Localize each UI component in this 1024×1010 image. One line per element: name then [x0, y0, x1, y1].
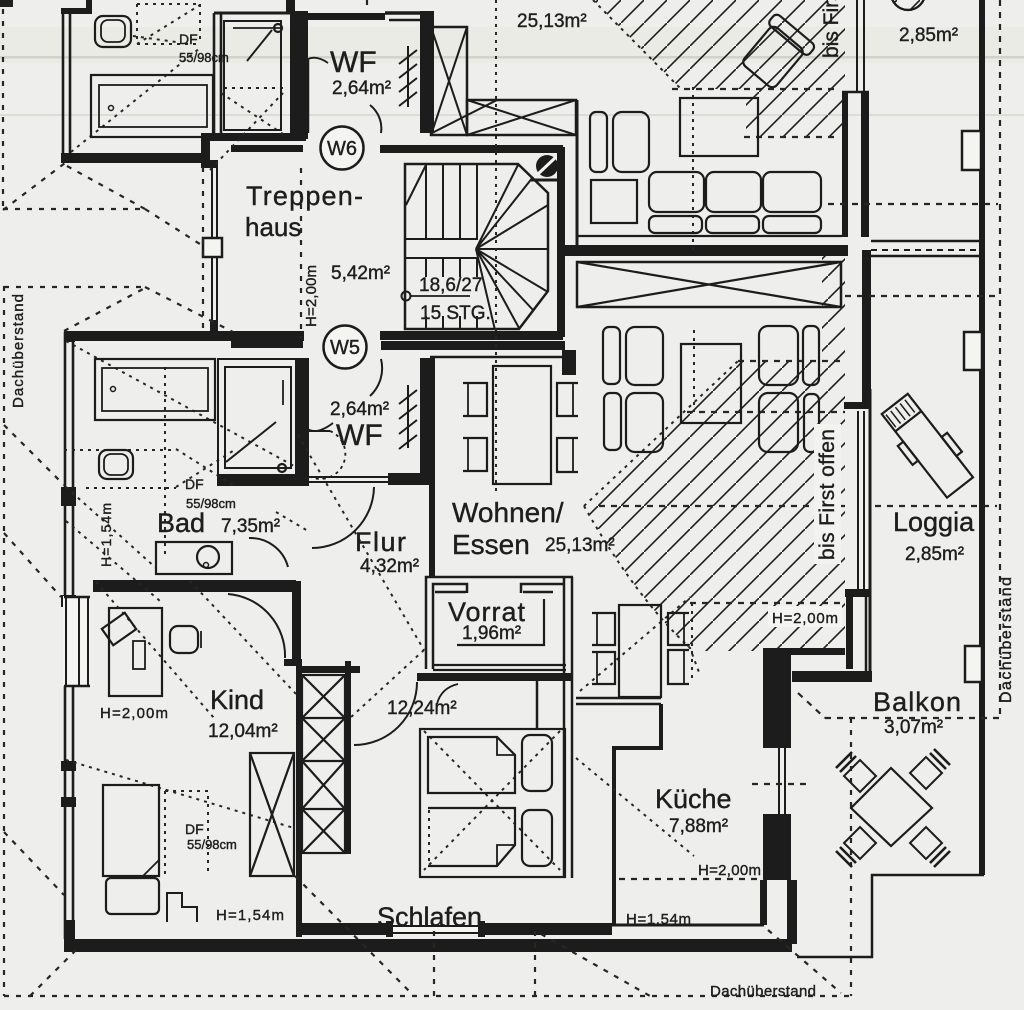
svg-text:12,24m²: 12,24m²: [387, 698, 457, 719]
svg-text:Essen: Essen: [452, 529, 530, 560]
svg-text:3,07m²: 3,07m²: [884, 717, 943, 738]
svg-text:DF: DF: [185, 476, 204, 492]
svg-text:Schlafen: Schlafen: [377, 902, 482, 932]
svg-text:Flur: Flur: [355, 527, 406, 557]
svg-text:H=2,00m: H=2,00m: [303, 265, 320, 327]
svg-text:H=1,54m: H=1,54m: [98, 503, 114, 567]
svg-text:25,13m²: 25,13m²: [517, 11, 587, 32]
svg-text:WF: WF: [330, 46, 377, 79]
svg-text:Dachüberstand: Dachüberstand: [710, 983, 816, 1000]
svg-text:Wohnen/: Wohnen/: [452, 497, 564, 528]
svg-text:WF: WF: [336, 419, 383, 452]
svg-text:Dachüberstand: Dachüberstand: [998, 577, 1015, 703]
svg-text:Treppen-: Treppen-: [246, 181, 363, 211]
svg-text:55/98cm: 55/98cm: [186, 496, 236, 511]
svg-text:H=2,00m: H=2,00m: [100, 705, 168, 722]
svg-text:haus: haus: [245, 212, 301, 242]
svg-text:Kind: Kind: [210, 685, 264, 715]
svg-text:bis Firs: bis Firs: [820, 0, 843, 58]
svg-text:15 STG.: 15 STG.: [420, 303, 491, 324]
svg-text:DF: DF: [179, 31, 198, 47]
svg-text:bis First offen: bis First offen: [816, 429, 839, 560]
svg-text:Balkon: Balkon: [873, 687, 961, 717]
svg-text:H=2,00m: H=2,00m: [772, 610, 838, 627]
svg-text:2,85m²: 2,85m²: [905, 544, 964, 565]
svg-text:W6: W6: [327, 138, 357, 160]
svg-text:1,96m²: 1,96m²: [462, 623, 521, 644]
svg-text:55/98cm: 55/98cm: [179, 50, 229, 65]
svg-text:5,42m²: 5,42m²: [331, 263, 390, 284]
svg-text:Loggia: Loggia: [893, 507, 975, 537]
svg-text:18,6/27: 18,6/27: [419, 275, 482, 296]
svg-text:Bad: Bad: [157, 508, 205, 538]
svg-text:H=1,54m: H=1,54m: [626, 911, 691, 928]
svg-text:7,35m²: 7,35m²: [221, 516, 280, 537]
svg-text:2,85m²: 2,85m²: [899, 25, 958, 46]
svg-text:2,64m²: 2,64m²: [332, 78, 391, 99]
svg-text:12,04m²: 12,04m²: [208, 721, 278, 742]
svg-text:7,88m²: 7,88m²: [669, 816, 728, 837]
svg-text:25,13m²: 25,13m²: [545, 535, 615, 556]
svg-text:H=2,00m: H=2,00m: [698, 862, 761, 879]
svg-text:W5: W5: [330, 337, 360, 359]
svg-text:4,32m²: 4,32m²: [360, 556, 419, 577]
svg-text:Dachüberstand: Dachüberstand: [10, 294, 27, 408]
svg-text:2,64m²: 2,64m²: [330, 399, 389, 420]
svg-text:H=1,54m: H=1,54m: [216, 907, 284, 924]
svg-text:55/98cm: 55/98cm: [187, 837, 237, 852]
svg-text:Küche: Küche: [655, 784, 732, 814]
svg-text:DF: DF: [185, 821, 204, 837]
